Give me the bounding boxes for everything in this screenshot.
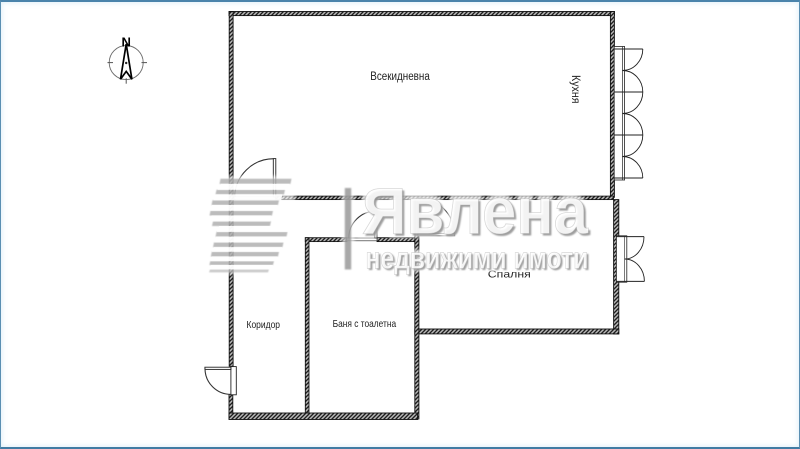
- svg-text:Кухня: Кухня: [569, 75, 581, 104]
- svg-text:недвижими имоти: недвижими имоти: [366, 241, 589, 276]
- svg-text:Коридор: Коридор: [247, 319, 281, 331]
- svg-text:N: N: [122, 35, 131, 50]
- svg-text:Явлена: Явлена: [362, 174, 589, 248]
- svg-text:Всекидневна: Всекидневна: [370, 71, 430, 83]
- svg-text:Баня с тоалетна: Баня с тоалетна: [333, 318, 397, 330]
